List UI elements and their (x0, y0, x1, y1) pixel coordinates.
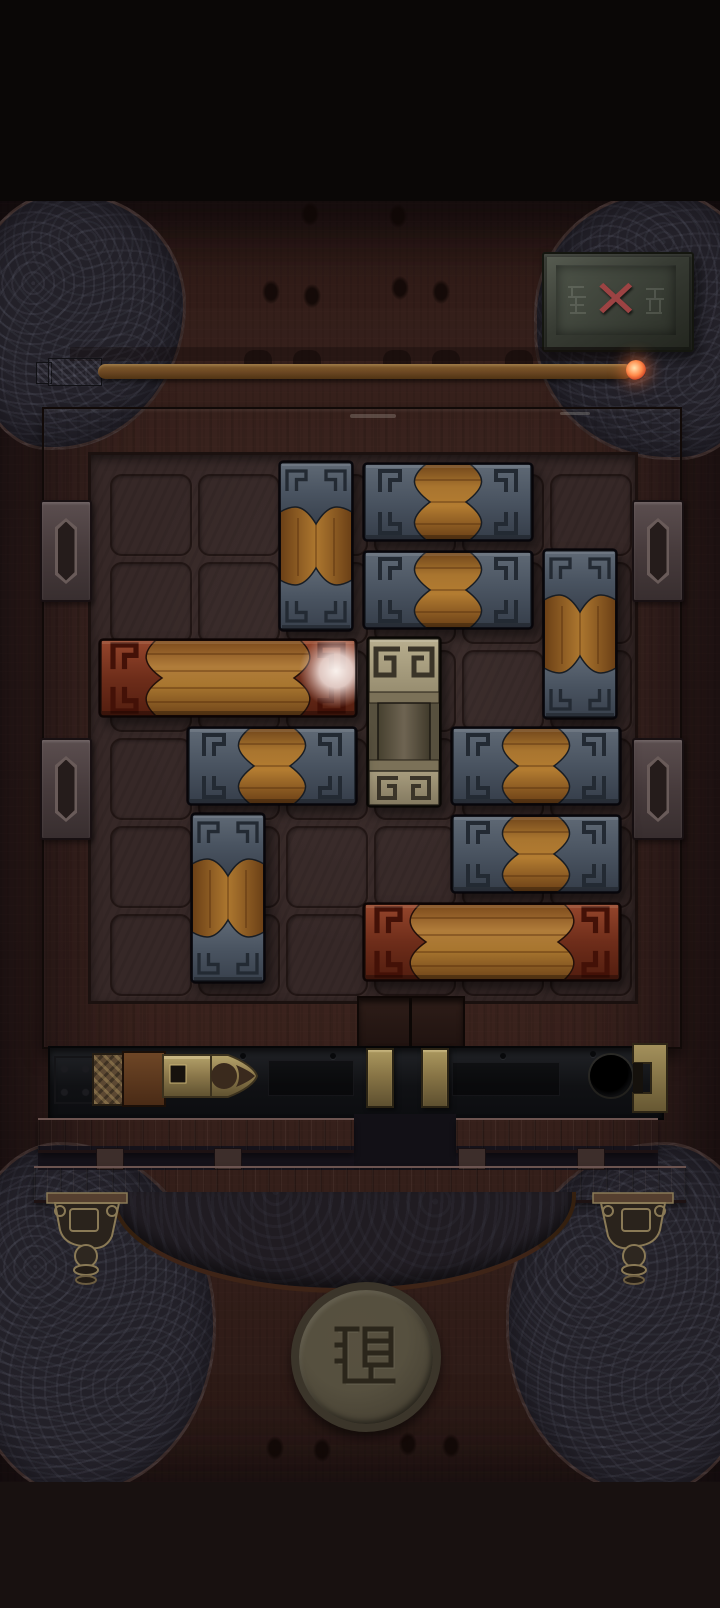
track-slot (268, 1060, 354, 1096)
frame-bracket-right-top (632, 500, 684, 602)
track-bolt (500, 1053, 506, 1059)
latch-ornate-segment (92, 1053, 126, 1106)
corbel-right (592, 1192, 674, 1286)
puzzle-piece-stone-h-4[interactable] (450, 726, 622, 810)
plank-row1-right (456, 1118, 658, 1153)
trim-band (70, 347, 630, 361)
incense-holder-ornate (48, 358, 102, 386)
board-pieces (96, 458, 624, 986)
exit-door-seam (409, 998, 412, 1046)
latch-metal-icon (627, 1043, 673, 1113)
nail-spot (389, 204, 407, 228)
corbel-left (46, 1192, 128, 1286)
puzzle-piece-key-stone[interactable] (366, 636, 442, 812)
close-button-face: ✕ (556, 265, 676, 335)
incense-timer-stick (98, 364, 632, 379)
puzzle-piece-stone-h-2[interactable] (362, 550, 534, 634)
close-x-icon: ✕ (592, 274, 639, 326)
latch-slider-handle[interactable] (162, 1049, 258, 1103)
exit-shaft-gap (354, 1114, 456, 1170)
incense-ember (626, 360, 646, 380)
latch-keeper-tab (366, 1048, 394, 1108)
puzzle-piece-stone-h-5[interactable] (450, 814, 622, 898)
latch-keeper-tab (421, 1048, 449, 1108)
rune-engraving-left-icon (564, 283, 590, 319)
puzzle-piece-stone-v-1[interactable] (278, 460, 354, 636)
puzzle-piece-stone-v-3[interactable] (190, 812, 266, 988)
latch-metal-icon (162, 1049, 258, 1103)
rune-engraving-right-icon (642, 283, 668, 319)
puzzle-game-screen: ✕ (0, 0, 720, 1608)
bracket-hole (55, 756, 77, 822)
bracket-hole (647, 756, 669, 822)
latch-round-hole (590, 1055, 632, 1097)
frame-bracket-right-bottom (632, 738, 684, 840)
frame-paint-chip (560, 412, 590, 415)
latch-catch (627, 1043, 673, 1113)
frame-paint-chip (350, 414, 396, 418)
letterbox-top (0, 0, 720, 201)
puzzle-piece-red-plank-2[interactable] (362, 902, 622, 986)
letterbox-bottom (0, 1482, 720, 1608)
frame-bracket-left-bottom (40, 738, 92, 840)
puzzle-piece-stone-h-3[interactable] (186, 726, 358, 810)
exit-doors (357, 996, 465, 1048)
close-button[interactable]: ✕ (542, 252, 694, 352)
nail-spot (391, 276, 409, 300)
track-bolt (590, 1051, 596, 1057)
seal-back-button[interactable] (291, 1282, 441, 1432)
plank-row1-left (38, 1118, 354, 1153)
frame-bracket-left-top (40, 500, 92, 602)
nail-spot (266, 1436, 284, 1460)
latch-wood-segment (122, 1051, 166, 1107)
puzzle-piece-stone-h-1[interactable] (362, 462, 534, 546)
latch-end-block (54, 1056, 96, 1104)
nail-spot (313, 1438, 331, 1462)
nail-spot (432, 280, 450, 304)
puzzle-piece-red-plank-1[interactable] (98, 638, 358, 722)
puzzle-piece-stone-v-2[interactable] (542, 548, 618, 724)
track-slot (452, 1062, 560, 1096)
nail-spot (262, 280, 280, 304)
nail-spot (442, 1434, 460, 1458)
nail-spot (399, 1432, 417, 1456)
nail-spot (303, 284, 321, 308)
track-bolt (330, 1053, 336, 1059)
seal-script-glyph-icon (327, 1317, 405, 1397)
bracket-hole (647, 518, 669, 584)
nail-spot (301, 202, 319, 226)
bracket-hole (55, 518, 77, 584)
